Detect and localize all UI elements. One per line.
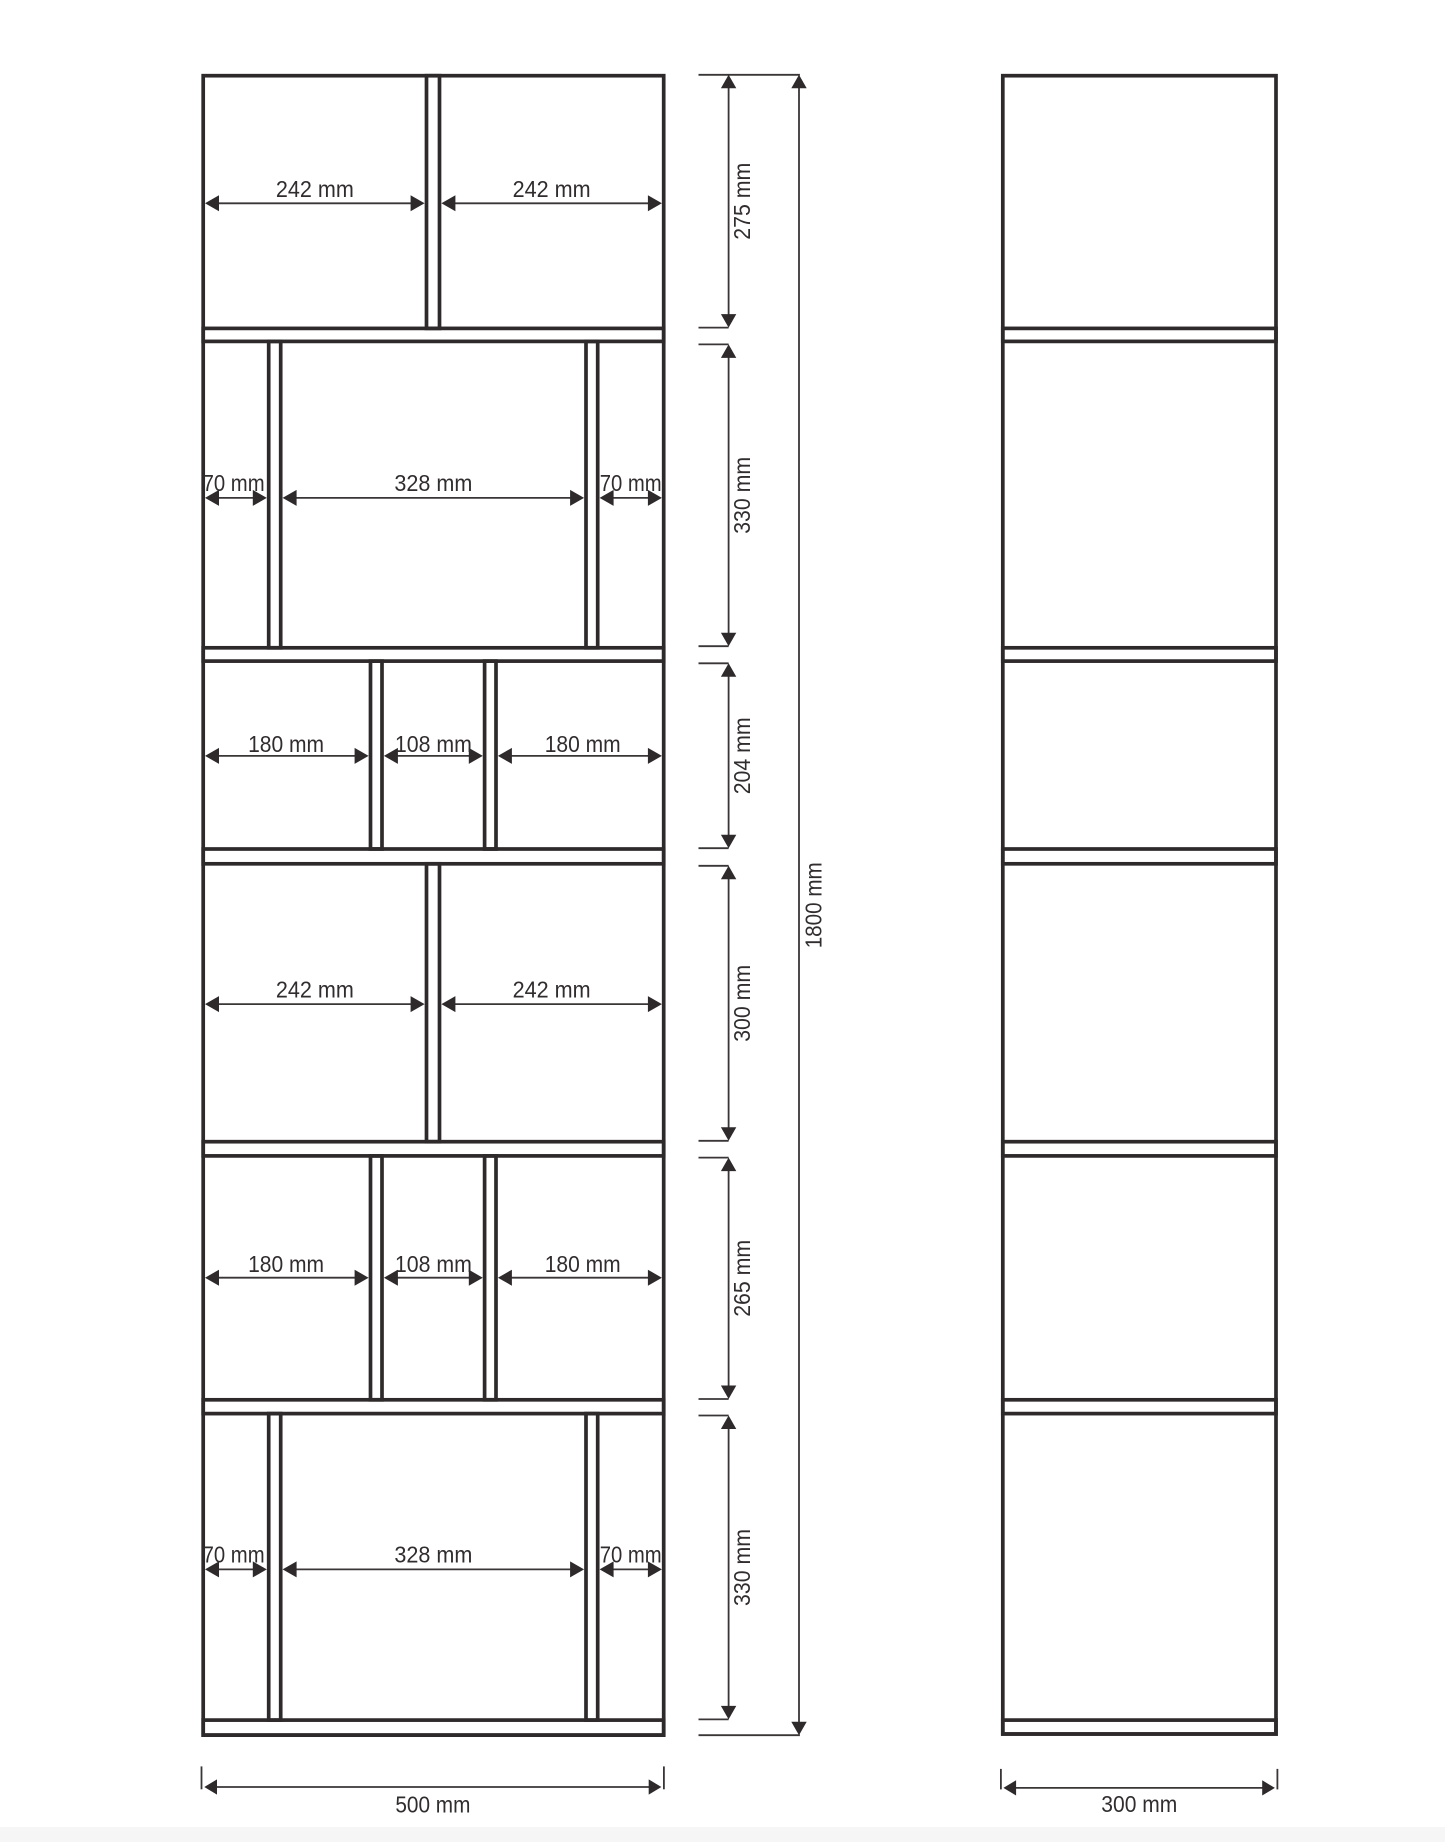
svg-text:242 mm: 242 mm bbox=[276, 976, 354, 1002]
svg-text:108 mm: 108 mm bbox=[395, 1251, 472, 1277]
svg-text:330 mm: 330 mm bbox=[729, 1529, 755, 1606]
svg-text:180 mm: 180 mm bbox=[248, 731, 324, 757]
svg-text:242 mm: 242 mm bbox=[513, 176, 591, 202]
svg-text:300 mm: 300 mm bbox=[729, 965, 755, 1042]
svg-text:328 mm: 328 mm bbox=[394, 1542, 472, 1568]
svg-text:500 mm: 500 mm bbox=[395, 1792, 470, 1818]
svg-text:242 mm: 242 mm bbox=[513, 976, 591, 1002]
svg-text:70 mm: 70 mm bbox=[600, 1542, 662, 1568]
svg-text:204 mm: 204 mm bbox=[729, 717, 755, 794]
svg-text:265 mm: 265 mm bbox=[729, 1240, 755, 1317]
svg-text:180 mm: 180 mm bbox=[545, 1251, 621, 1277]
svg-text:330 mm: 330 mm bbox=[729, 457, 755, 534]
svg-text:1800 mm: 1800 mm bbox=[800, 862, 826, 948]
svg-text:108 mm: 108 mm bbox=[395, 731, 472, 757]
svg-text:70 mm: 70 mm bbox=[203, 1542, 265, 1568]
svg-text:328 mm: 328 mm bbox=[394, 470, 472, 496]
svg-text:242 mm: 242 mm bbox=[276, 176, 354, 202]
svg-text:180 mm: 180 mm bbox=[248, 1251, 324, 1277]
svg-text:300 mm: 300 mm bbox=[1101, 1791, 1177, 1817]
svg-text:275 mm: 275 mm bbox=[729, 163, 755, 240]
svg-text:180 mm: 180 mm bbox=[545, 731, 621, 757]
svg-text:70 mm: 70 mm bbox=[600, 470, 662, 496]
svg-text:70 mm: 70 mm bbox=[203, 470, 265, 496]
